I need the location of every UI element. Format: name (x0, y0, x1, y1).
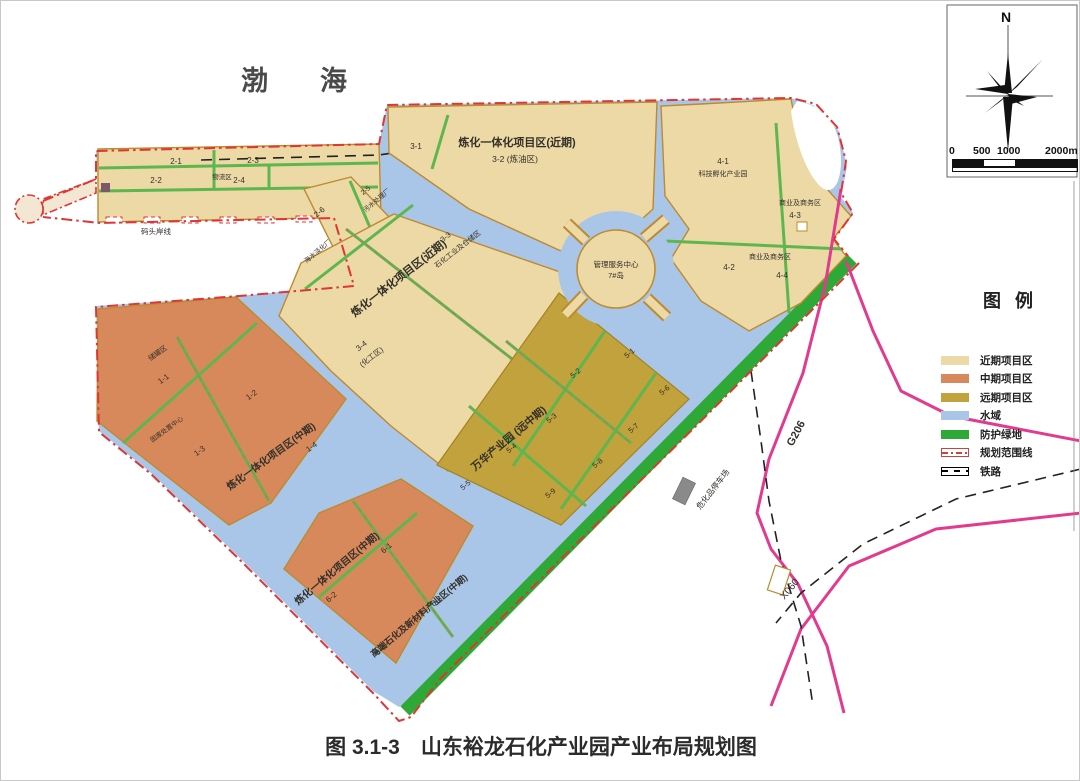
scale-tick-0: 0 (949, 145, 955, 157)
planning-map: 2-12-32-2物流区2-4码头岸线2-5污水处理厂2-6海水淡化厂3-1炼化… (1, 1, 1080, 781)
legend-label-0: 近期项目区 (980, 353, 1033, 368)
map-label-15: 4-1 (717, 157, 729, 166)
scale-tick-3: 2000m (1045, 145, 1078, 157)
railway-south (751, 371, 813, 706)
legend-swatch-2 (941, 393, 969, 402)
legend-item-2: 远期项目区 (941, 388, 1076, 407)
map-label-51: G206 (785, 419, 808, 448)
figure-title: 图 3.1-3 山东裕龙石化产业园产业布局规划图 (1, 731, 1080, 761)
central-island (558, 211, 674, 327)
port-facility-block (101, 183, 110, 192)
legend-label-1: 中期项目区 (980, 371, 1033, 386)
map-label-5: 码头岸线 (141, 226, 171, 236)
map-label-12: 3-2 (炼油区) (492, 154, 538, 164)
map-label-10: 3-1 (410, 142, 422, 151)
legend-label-6: 铁路 (980, 464, 1001, 479)
small-plot (797, 222, 807, 231)
legend-label-3: 水域 (980, 408, 1001, 423)
legend-swatch-0 (941, 356, 969, 365)
hazmat-parking-block (672, 477, 695, 505)
pier (15, 179, 96, 223)
legend-item-4: 防护绿地 (941, 425, 1076, 444)
map-label-2: 2-2 (150, 176, 162, 185)
legend-label-2: 远期项目区 (980, 390, 1033, 405)
legend-swatch-5 (941, 448, 969, 457)
map-label-14: 7#岛 (608, 270, 624, 280)
map-label-3: 物流区 (212, 172, 232, 181)
map-label-21: 4-4 (776, 271, 788, 280)
scale-bar (952, 159, 1078, 167)
legend-item-0: 近期项目区 (941, 351, 1076, 370)
map-label-1: 2-3 (247, 156, 259, 165)
map-label-19: 4-2 (723, 263, 735, 272)
road-south (771, 513, 1080, 706)
legend-label-4: 防护绿地 (980, 427, 1022, 442)
map-label-17: 商业及商务区 (779, 198, 821, 207)
legend-swatch-3 (941, 411, 969, 420)
scale-tick-1: 500 (973, 145, 991, 157)
map-label-4: 2-4 (233, 176, 245, 185)
map-label-11: 炼化一体化项目区(近期) (458, 135, 576, 149)
map-label-16: 科技孵化产业园 (699, 169, 748, 178)
legend-swatch-6 (941, 467, 969, 476)
legend-title: 图例 (983, 287, 1076, 313)
legend-item-1: 中期项目区 (941, 370, 1076, 389)
legend-label-5: 规划范围线 (980, 445, 1033, 460)
legend-swatch-4 (941, 430, 969, 439)
legend-item-3: 水域 (941, 407, 1076, 426)
scale-tick-2: 1000 (997, 145, 1020, 157)
scale-bar-2 (952, 167, 1078, 172)
legend-item-6: 铁路 (941, 462, 1076, 481)
figure: 渤海 (0, 0, 1080, 781)
north-label: N (1001, 9, 1011, 25)
legend: 图例 近期项目区中期项目区远期项目区水域防护绿地规划范围线铁路 (941, 287, 1076, 481)
legend-swatch-1 (941, 374, 969, 383)
map-label-50: 危化品停车场 (694, 467, 731, 511)
map-label-20: 商业及商务区 (749, 252, 791, 261)
map-label-18: 4-3 (789, 211, 801, 220)
map-label-0: 2-1 (170, 157, 182, 166)
legend-item-5: 规划范围线 (941, 444, 1076, 463)
map-label-13: 管理服务中心 (594, 259, 639, 269)
